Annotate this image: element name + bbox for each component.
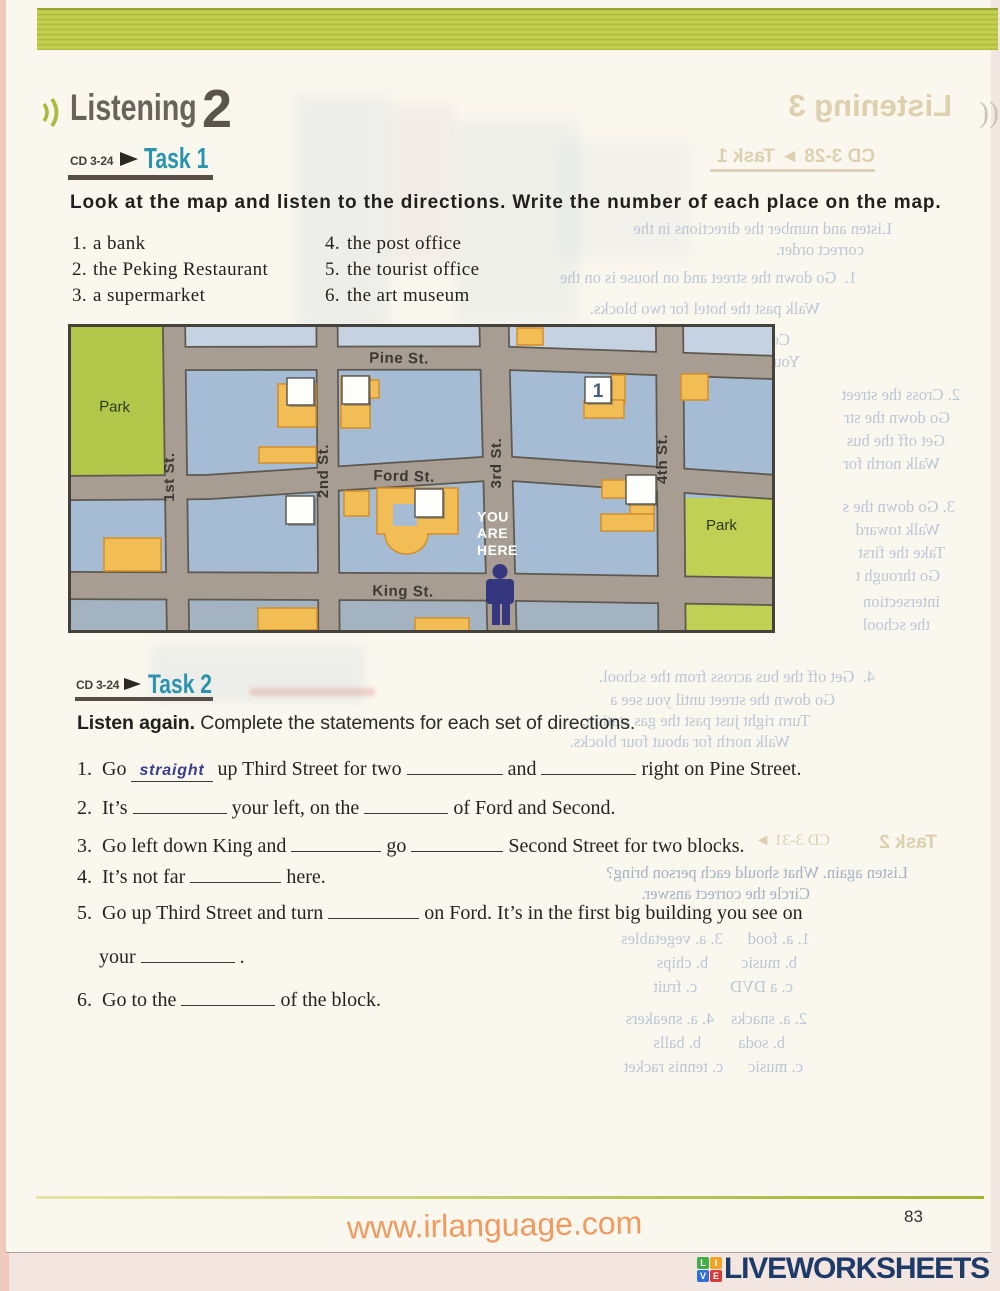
svg-text:King St.: King St. [372,582,434,600]
svg-text:YOU: YOU [477,509,509,525]
svg-text:Pine St.: Pine St. [369,349,429,367]
svg-text:4th St.: 4th St. [654,434,671,484]
svg-text:1: 1 [593,381,604,402]
svg-text:1st St.: 1st St. [161,452,178,501]
svg-text:Ford St.: Ford St. [373,467,435,486]
svg-text:3rd St.: 3rd St. [488,438,505,489]
svg-text:HERE: HERE [477,542,518,558]
svg-text:Park: Park [706,517,737,534]
svg-text:2nd St.: 2nd St. [315,444,332,498]
svg-text:Park: Park [99,398,131,416]
svg-text:ARE: ARE [477,525,508,541]
